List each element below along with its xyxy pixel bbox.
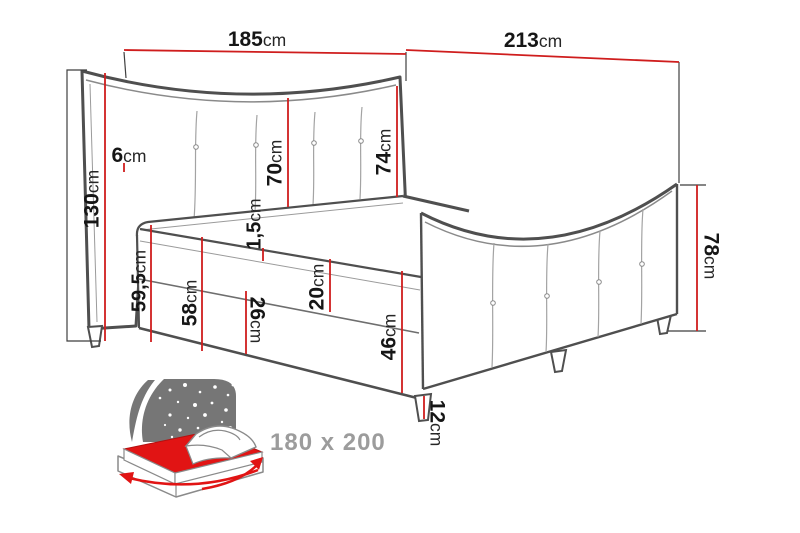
dim-label-130: 130cm <box>81 170 104 228</box>
dim-line-213 <box>406 50 679 62</box>
size-badge: 180 x 200 <box>270 429 386 456</box>
dim-label-185: 185cm <box>228 28 286 51</box>
dim-label-213: 213cm <box>504 29 562 52</box>
mattress-size-icon <box>118 379 263 497</box>
footboard-leg <box>551 350 566 372</box>
tufting-button <box>312 141 317 146</box>
dim-label-12: 12cm <box>425 400 448 447</box>
diagram-canvas: 180 x 200 185cm 213cm 6cm 130cm 70cm 74c… <box>0 0 800 533</box>
headboard-leg <box>88 326 102 347</box>
tufting-button <box>491 301 496 306</box>
tufting-button <box>194 145 199 150</box>
dim-label-20: 20cm <box>306 264 329 311</box>
dim-label-70: 70cm <box>264 140 287 187</box>
dim-line-185 <box>124 50 406 54</box>
dim-label-1-5: 1,5cm <box>244 198 266 249</box>
tufting-button <box>545 294 550 299</box>
tufting-button <box>640 262 645 267</box>
tufting-button <box>597 280 602 285</box>
dim-label-6: 6cm <box>111 144 146 167</box>
bed-dimension-diagram: 180 x 200 185cm 213cm 6cm 130cm 70cm 74c… <box>0 0 800 533</box>
dim-label-78: 78cm <box>699 233 722 280</box>
dim-label-46: 46cm <box>378 314 401 361</box>
dim-label-59-5: 59,5cm <box>129 250 151 312</box>
dim-label-74: 74cm <box>373 129 396 176</box>
dim-label-58: 58cm <box>179 280 202 327</box>
tufting-button <box>254 143 259 148</box>
tufting-button <box>359 139 364 144</box>
dim-label-26: 26cm <box>245 297 268 344</box>
